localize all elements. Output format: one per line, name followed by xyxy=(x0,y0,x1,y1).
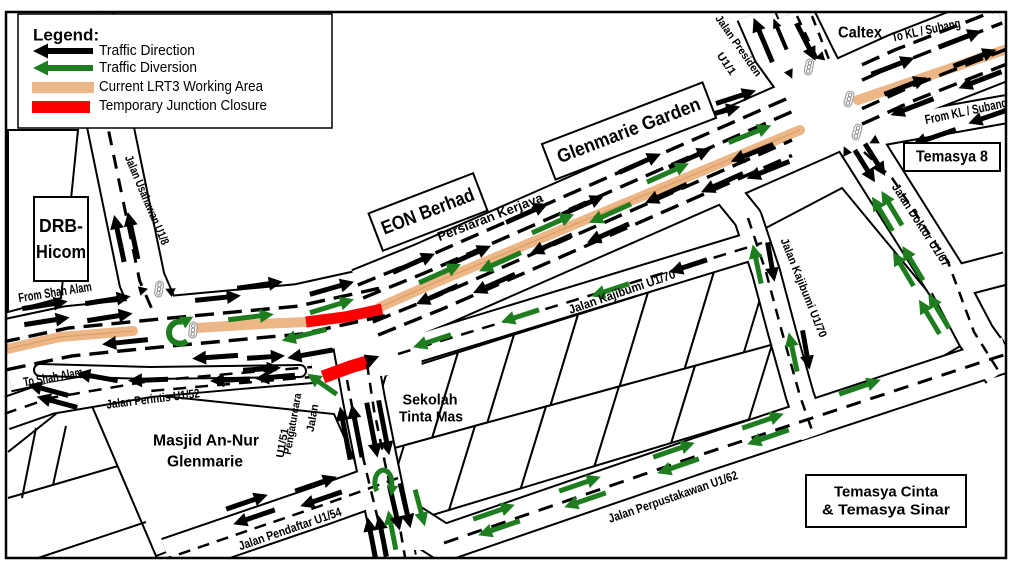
svg-text:Masjid An-Nur: Masjid An-Nur xyxy=(153,433,259,450)
svg-text:Caltex: Caltex xyxy=(838,25,882,42)
svg-text:Sekolah: Sekolah xyxy=(403,392,458,409)
svg-text:Legend:: Legend: xyxy=(33,26,99,45)
svg-text:Hicom: Hicom xyxy=(36,242,86,262)
svg-text:Tinta Mas: Tinta Mas xyxy=(399,409,463,426)
svg-text:& Temasya Sinar: & Temasya Sinar xyxy=(822,502,950,519)
svg-text:Temasya 8: Temasya 8 xyxy=(916,149,988,166)
svg-text:Current LRT3 Working Area: Current LRT3 Working Area xyxy=(99,79,264,95)
svg-text:Temporary Junction Closure: Temporary Junction Closure xyxy=(99,98,267,114)
svg-text:DRB-: DRB- xyxy=(39,216,83,236)
svg-text:Glenmarie: Glenmarie xyxy=(167,454,243,471)
svg-text:Traffic Diversion: Traffic Diversion xyxy=(99,60,197,76)
svg-text:Temasya Cinta: Temasya Cinta xyxy=(834,484,939,501)
svg-text:Traffic Direction: Traffic Direction xyxy=(99,43,195,59)
